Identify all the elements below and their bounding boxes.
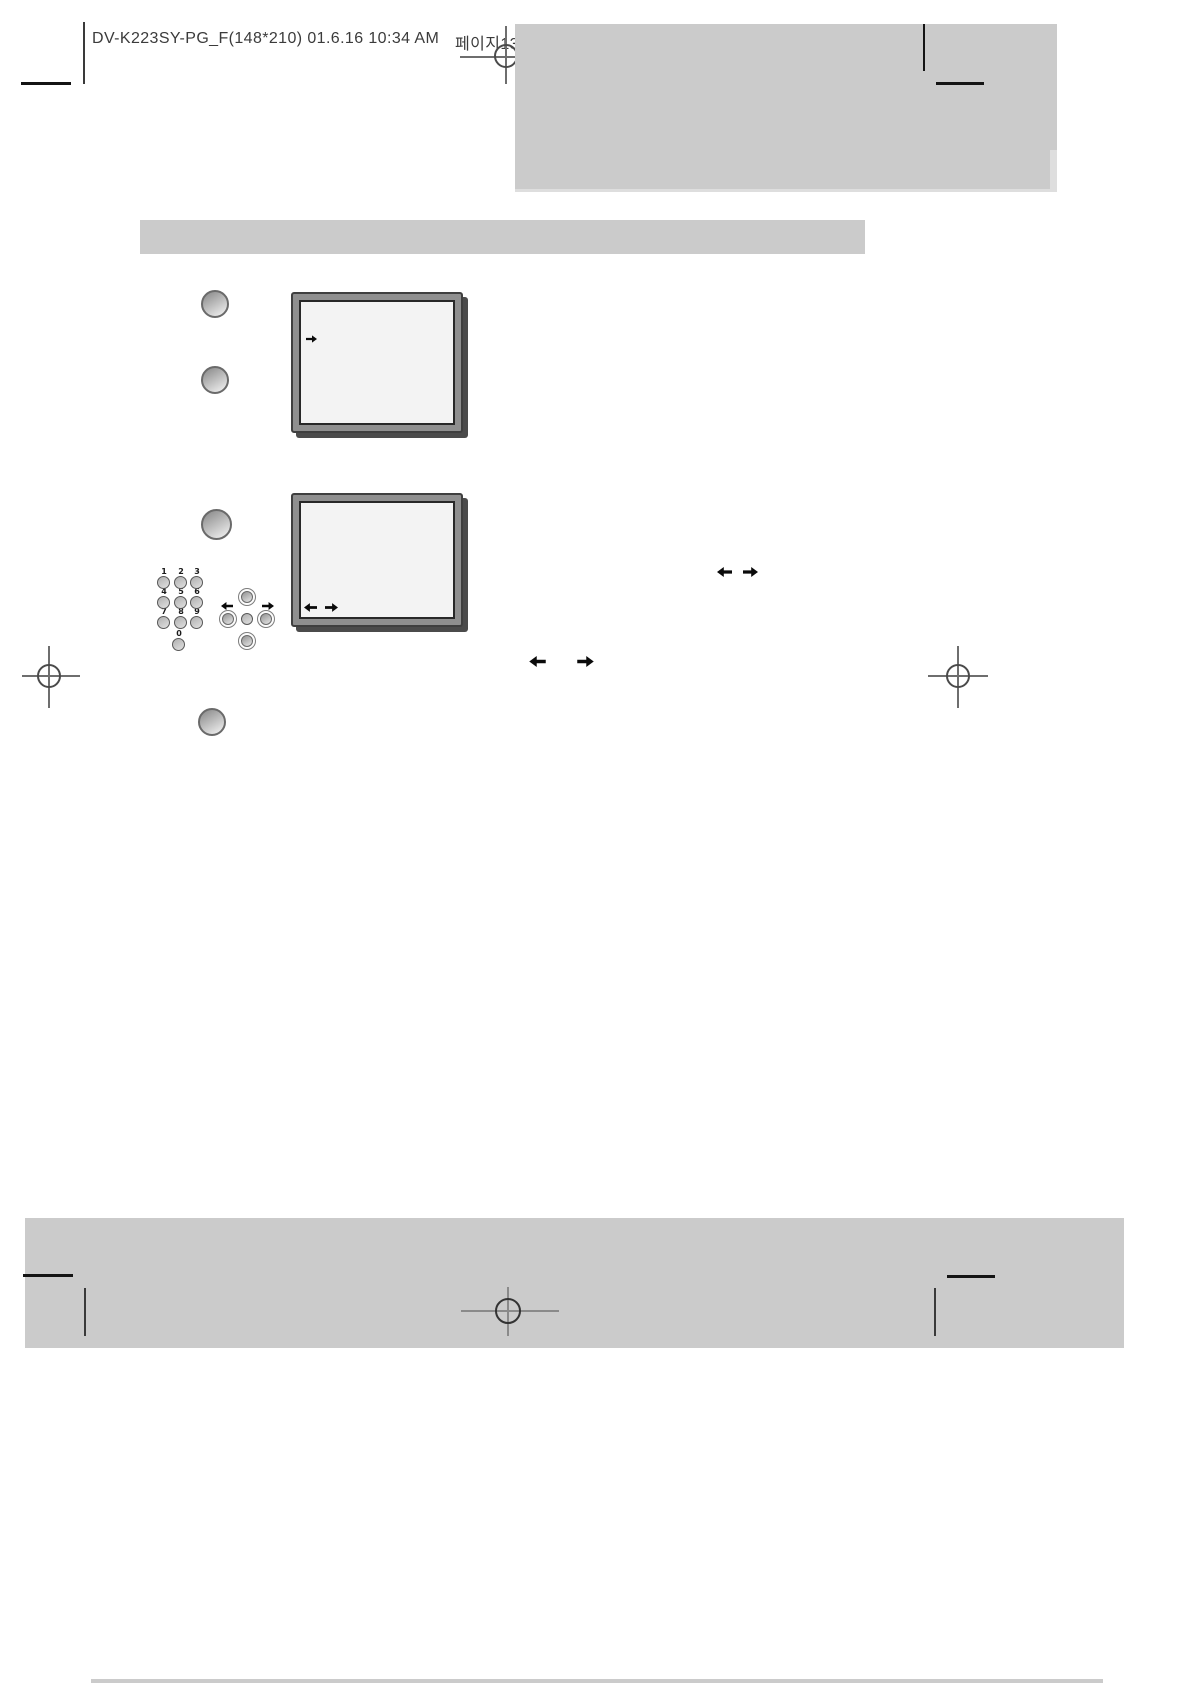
manual-proof-page: DV-K223SY-PG_F(148*210) 01.6.16 10:34 AM…	[0, 0, 1191, 1685]
illustrated-remote-button-step3	[201, 509, 232, 540]
placeholder-block-bottom-shade	[515, 189, 1057, 192]
tv2-screen-area	[299, 501, 455, 619]
trim-mark-top-right-vertical	[923, 24, 925, 71]
trim-mark-top-left-horizontal	[21, 82, 71, 85]
crosshair-bottom-ring	[495, 1298, 521, 1324]
trim-mark-top-left-vertical	[83, 22, 85, 84]
left-arrow-icon	[717, 567, 732, 577]
keypad-key-3	[190, 576, 203, 589]
dpad-down-button	[238, 632, 256, 650]
keypad-label: 3	[190, 567, 204, 576]
keypad-key-8	[174, 616, 187, 629]
right-arrow-icon	[325, 603, 338, 612]
illustrated-remote-button-step2	[201, 366, 229, 394]
crosshair-mid-right-ring	[946, 664, 970, 688]
dpad-center-button	[241, 613, 253, 625]
left-arrow-icon	[221, 602, 233, 610]
tv-screen-illustration-2	[291, 493, 463, 627]
proof-header-text: DV-K223SY-PG_F(148*210) 01.6.16 10:34 AM	[92, 30, 439, 48]
section-title-bar	[140, 220, 865, 254]
keypad-key-6	[190, 596, 203, 609]
right-arrow-icon	[262, 602, 274, 610]
left-arrow-icon	[529, 656, 546, 667]
placeholder-band-bottom	[25, 1218, 1124, 1348]
keypad-key-5	[174, 596, 187, 609]
keypad-key-2	[174, 576, 187, 589]
keypad-key-1	[157, 576, 170, 589]
left-arrow-icon	[304, 603, 317, 612]
trim-mark-bottom-right-horizontal	[947, 1275, 995, 1278]
trim-mark-top-right-horizontal	[936, 82, 984, 85]
placeholder-block-step-shade	[1050, 150, 1057, 192]
illustrated-remote-button-step4	[198, 708, 226, 736]
keypad-key-7	[157, 616, 170, 629]
keypad-label: 0	[172, 629, 186, 638]
placeholder-block-top-right	[515, 24, 1057, 192]
dpad-right-button	[257, 610, 275, 628]
keypad-label: 2	[174, 567, 188, 576]
tv1-screen-area	[299, 300, 455, 425]
dpad-left-button	[219, 610, 237, 628]
keypad-label: 1	[157, 567, 171, 576]
crosshair-mid-left-ring	[37, 664, 61, 688]
tv-screen-illustration-1	[291, 292, 463, 433]
trim-mark-bottom-left-vertical	[84, 1288, 86, 1336]
keypad-key-9	[190, 616, 203, 629]
right-arrow-icon	[306, 335, 317, 343]
keypad-key-4	[157, 596, 170, 609]
dpad-up-button	[238, 588, 256, 606]
right-arrow-icon	[577, 656, 594, 667]
right-arrow-icon	[743, 567, 758, 577]
trim-mark-bottom-right-vertical	[934, 1288, 936, 1336]
illustrated-remote-button-step1	[201, 290, 229, 318]
keypad-key-0	[172, 638, 185, 651]
bottom-page-rule	[91, 1679, 1103, 1683]
trim-mark-bottom-left-horizontal	[23, 1274, 73, 1277]
